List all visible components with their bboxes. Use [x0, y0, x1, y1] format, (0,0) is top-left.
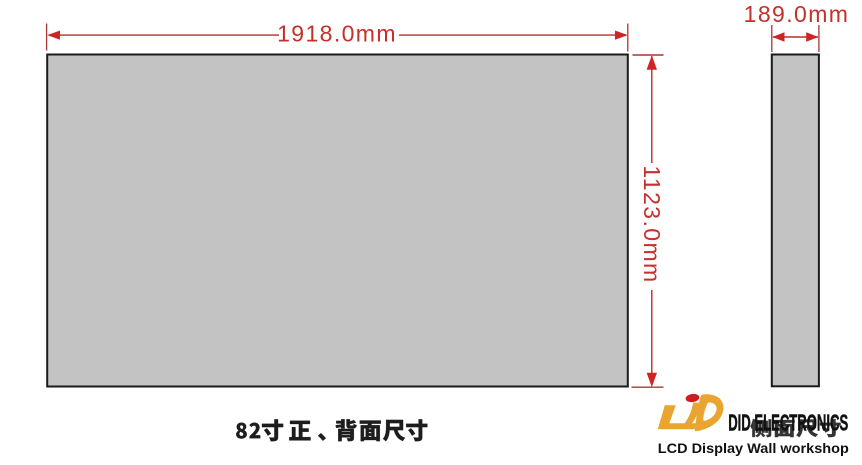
svg-text:LCD Display Wall workshop: LCD Display Wall workshop: [658, 440, 849, 456]
svg-text:1123.0mm: 1123.0mm: [639, 165, 665, 283]
svg-text:1918.0mm: 1918.0mm: [277, 21, 397, 47]
svg-text:DID ELECTRONICS: DID ELECTRONICS: [728, 409, 848, 435]
svg-text:189.0mm: 189.0mm: [744, 1, 850, 27]
